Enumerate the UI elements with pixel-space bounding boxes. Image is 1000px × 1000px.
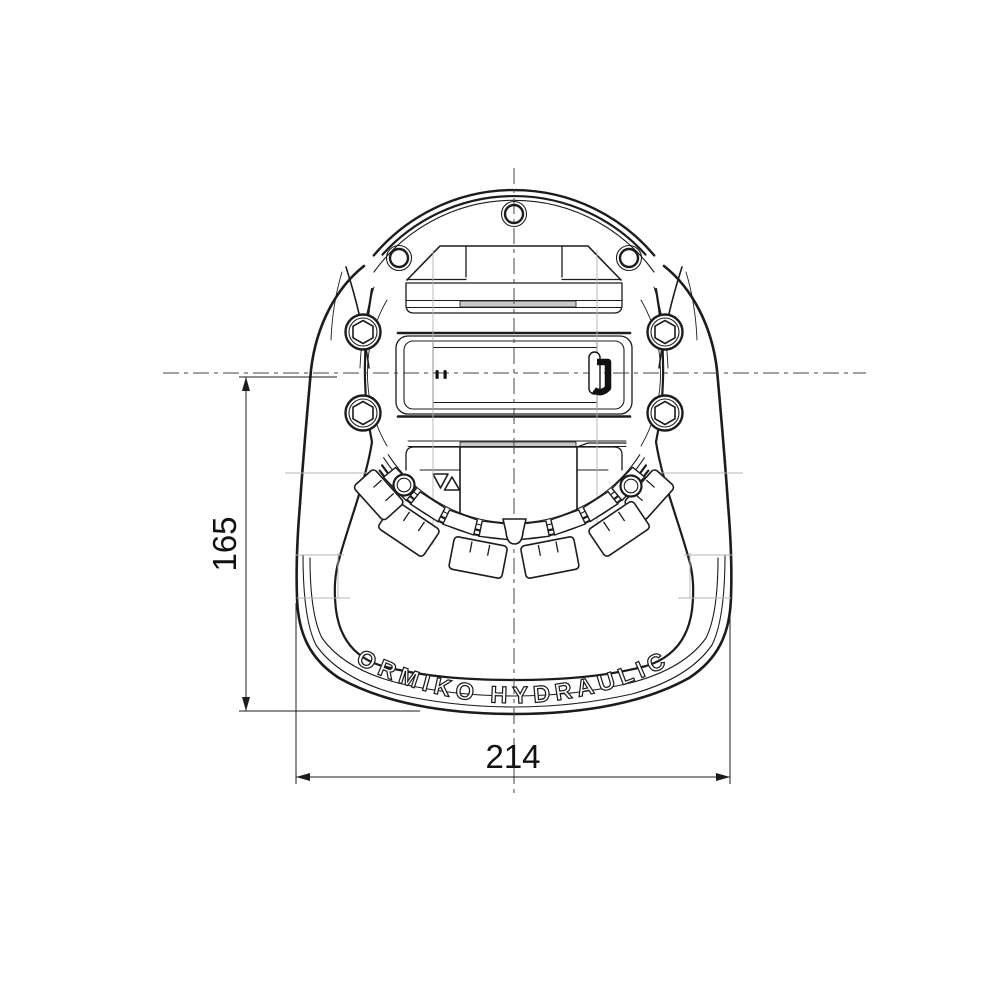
hex-bolt-right-lower — [648, 396, 683, 431]
pivot-circle-left — [394, 475, 415, 496]
pivot-circle-right — [621, 476, 642, 497]
hex-bolt-right-upper — [648, 315, 683, 350]
drawing-sheet: FORMIKO HYDRAULICS 165 214 — [0, 0, 1000, 1000]
hex-bolt-left-upper — [346, 315, 381, 350]
top-plate-seal-strip — [460, 301, 576, 307]
height-dimension-value: 165 — [206, 516, 243, 571]
width-dimension-value: 214 — [485, 738, 540, 775]
lower-plate-seal-strip — [460, 442, 576, 447]
technical-drawing-canvas: FORMIKO HYDRAULICS 165 214 — [0, 0, 1000, 1000]
index-mark-right — [444, 370, 447, 379]
index-mark-left — [436, 370, 439, 379]
hex-bolt-left-lower — [346, 396, 381, 431]
